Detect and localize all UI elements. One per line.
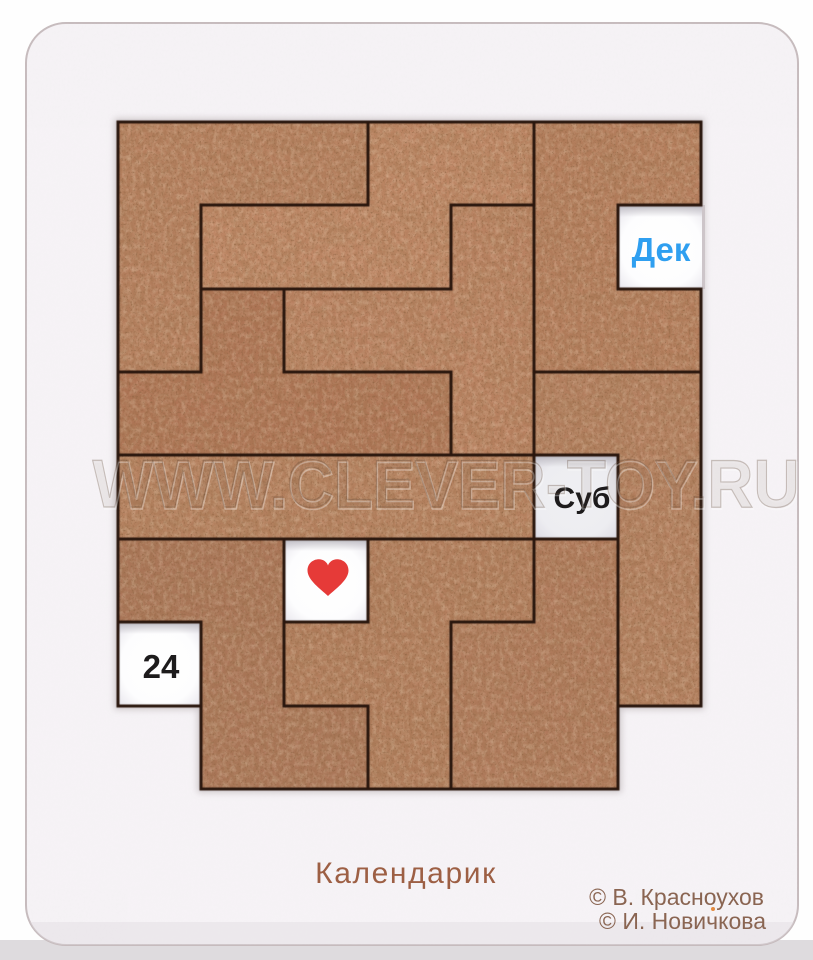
svg-text:24: 24 [143,648,180,685]
svg-text:© И. Новичкова: © И. Новичкова [599,908,766,934]
svg-text:Календарик: Календарик [315,857,497,890]
svg-text:Дек: Дек [632,231,691,268]
svg-text:© В. Красноухов: © В. Красноухов [589,884,764,910]
svg-text:WWW.CLEVER-TOY.RU: WWW.CLEVER-TOY.RU [93,446,800,522]
